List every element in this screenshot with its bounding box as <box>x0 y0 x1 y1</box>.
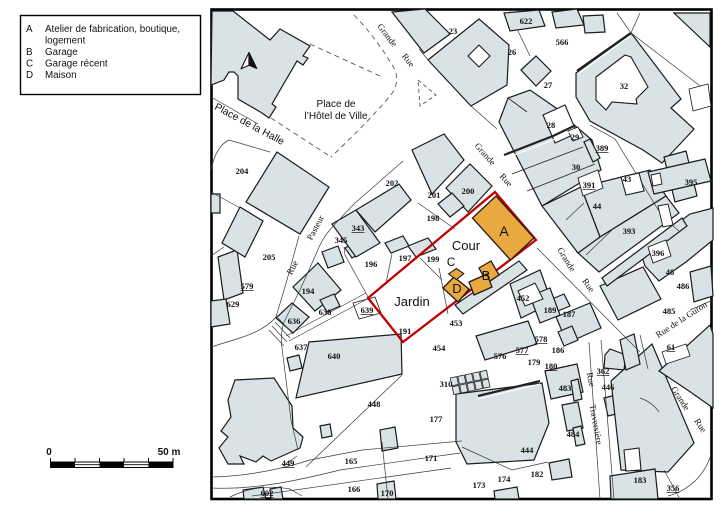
svg-text:310: 310 <box>440 379 453 389</box>
svg-text:183: 183 <box>634 475 647 485</box>
svg-text:30: 30 <box>572 162 581 172</box>
svg-text:186: 186 <box>552 345 565 355</box>
svg-text:61: 61 <box>667 342 676 352</box>
svg-text:28: 28 <box>547 120 556 130</box>
svg-text:484: 484 <box>567 429 581 439</box>
svg-text:446: 446 <box>602 382 615 392</box>
svg-text:637: 637 <box>295 342 309 352</box>
svg-text:391: 391 <box>583 180 596 190</box>
svg-text:629: 629 <box>227 299 240 309</box>
svg-text:578: 578 <box>535 334 548 344</box>
svg-text:189: 189 <box>544 305 557 315</box>
svg-text:196: 196 <box>365 259 378 269</box>
svg-text:29: 29 <box>571 132 580 142</box>
svg-text:205: 205 <box>263 252 276 262</box>
svg-text:165: 165 <box>345 456 358 466</box>
svg-text:191: 191 <box>399 326 412 336</box>
svg-text:179: 179 <box>528 357 541 367</box>
svg-text:452: 452 <box>517 293 530 303</box>
svg-text:Place de: Place de <box>317 99 356 110</box>
svg-text:453: 453 <box>450 318 463 328</box>
svg-text:393: 393 <box>623 226 636 236</box>
svg-text:174: 174 <box>498 474 512 484</box>
svg-text:201: 201 <box>428 190 441 200</box>
svg-text:362: 362 <box>597 366 610 376</box>
svg-text:A: A <box>499 223 509 239</box>
svg-text:579: 579 <box>241 281 254 291</box>
svg-text:638: 638 <box>319 307 332 317</box>
svg-text:32: 32 <box>620 81 629 91</box>
svg-text:23: 23 <box>449 26 458 36</box>
svg-text:576: 576 <box>494 351 507 361</box>
svg-text:389: 389 <box>596 143 609 153</box>
svg-text:26: 26 <box>508 47 517 57</box>
svg-text:444: 444 <box>521 445 535 455</box>
svg-text:356: 356 <box>667 483 680 493</box>
svg-text:639: 639 <box>361 305 374 315</box>
svg-text:27: 27 <box>544 80 553 90</box>
svg-text:577: 577 <box>516 345 530 355</box>
svg-text:B: B <box>482 268 491 283</box>
svg-text:Garage: Garage <box>45 47 78 58</box>
svg-text:logement: logement <box>45 36 86 47</box>
svg-text:395: 395 <box>685 177 698 187</box>
svg-text:0: 0 <box>46 447 52 458</box>
svg-text:602: 602 <box>261 488 274 498</box>
svg-text:622: 622 <box>520 16 533 26</box>
svg-text:180: 180 <box>545 361 558 371</box>
svg-text:640: 640 <box>328 351 341 361</box>
svg-text:345: 345 <box>335 235 348 245</box>
svg-text:Jardin: Jardin <box>394 294 429 309</box>
svg-text:566: 566 <box>556 37 569 47</box>
svg-text:Garage récent: Garage récent <box>45 59 108 70</box>
svg-text:396: 396 <box>652 248 665 258</box>
svg-text:171: 171 <box>425 453 438 463</box>
svg-text:198: 198 <box>427 213 440 223</box>
svg-text:B: B <box>26 47 33 58</box>
svg-text:194: 194 <box>302 286 316 296</box>
svg-text:Maison: Maison <box>45 70 77 81</box>
svg-text:187: 187 <box>563 309 577 319</box>
svg-text:200: 200 <box>462 186 475 196</box>
svg-text:C: C <box>447 257 455 269</box>
svg-text:44: 44 <box>593 201 602 211</box>
svg-text:485: 485 <box>663 306 676 316</box>
svg-text:D: D <box>452 281 461 296</box>
svg-text:48: 48 <box>666 267 675 277</box>
svg-text:204: 204 <box>236 166 250 176</box>
svg-text:197: 197 <box>399 253 413 263</box>
svg-text:43: 43 <box>623 174 632 184</box>
svg-text:l’Hôtel de Ville: l’Hôtel de Ville <box>304 111 368 122</box>
svg-text:D: D <box>26 70 33 81</box>
svg-text:50 m: 50 m <box>158 447 181 458</box>
svg-text:636: 636 <box>288 316 301 326</box>
svg-text:182: 182 <box>531 469 544 479</box>
svg-text:170: 170 <box>381 488 394 498</box>
svg-text:173: 173 <box>473 480 486 490</box>
svg-text:483: 483 <box>559 383 572 393</box>
svg-text:A: A <box>26 24 33 35</box>
svg-text:449: 449 <box>282 458 295 468</box>
svg-text:454: 454 <box>433 343 447 353</box>
svg-text:199: 199 <box>427 254 440 264</box>
svg-text:448: 448 <box>368 399 381 409</box>
svg-text:166: 166 <box>348 484 361 494</box>
svg-text:177: 177 <box>430 414 444 424</box>
svg-text:343: 343 <box>352 223 365 233</box>
svg-text:486: 486 <box>677 281 690 291</box>
svg-text:Atelier de fabrication, boutiq: Atelier de fabrication, boutique, <box>45 24 180 35</box>
svg-text:Cour: Cour <box>452 238 481 253</box>
svg-text:C: C <box>26 59 33 70</box>
svg-text:202: 202 <box>386 178 399 188</box>
